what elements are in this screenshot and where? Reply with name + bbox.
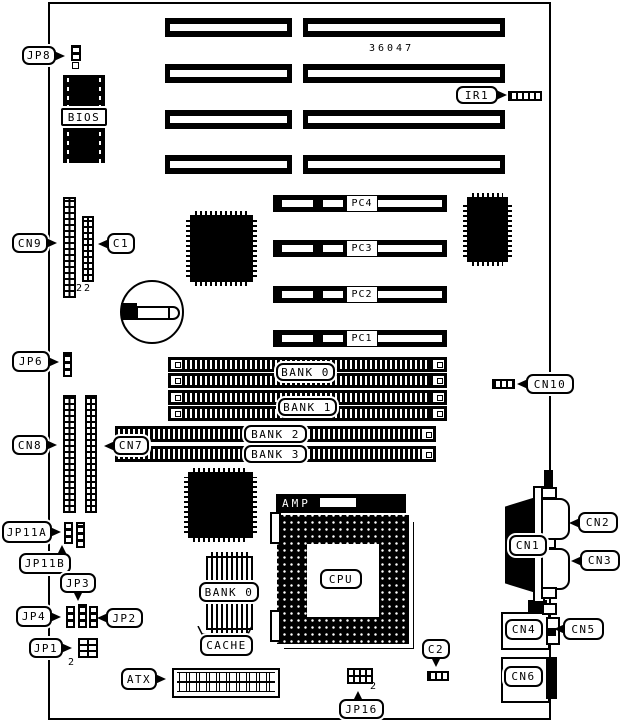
callout-tail <box>97 613 108 623</box>
pci-slot-pc4: PC4 <box>273 195 447 212</box>
jp11a-jumper <box>64 522 73 544</box>
callout-tail <box>569 518 580 528</box>
atx-callout: ATX <box>121 668 157 690</box>
simm-end-bracket <box>432 359 445 370</box>
socket-side-tab <box>270 512 281 544</box>
pci-slot-pc2: PC2 <box>273 286 447 303</box>
jp11b-callout: JP11B <box>19 553 71 574</box>
callout-tail <box>554 624 565 634</box>
pci-stripe <box>378 200 442 207</box>
pci-stripe <box>323 291 343 298</box>
dimm-end-bracket <box>421 448 434 460</box>
cn3-callout: CN3 <box>580 550 620 571</box>
amp-label: AMP <box>282 497 311 510</box>
bank0-callout: BANK 0 <box>276 363 335 381</box>
callout-tail <box>353 691 363 701</box>
simm-end-bracket <box>432 375 445 386</box>
callout-tail <box>496 90 507 100</box>
callout-tail <box>104 441 115 451</box>
cn4-callout: CN4 <box>505 619 543 640</box>
jp1-pin2-text: 2 <box>68 657 76 668</box>
jp16-callout: JP16 <box>339 699 384 719</box>
callout-tail <box>50 612 61 622</box>
jp16-pin2-text: 2 <box>370 681 378 692</box>
chipset-qfp-3 <box>188 472 253 538</box>
cn8-header <box>63 395 76 513</box>
pci-stripe <box>378 245 442 252</box>
bios-label: BIOS <box>68 111 101 124</box>
jp3-callout: JP3 <box>60 573 96 593</box>
atx-pin-row <box>177 672 275 682</box>
jp6-label: JP6 <box>19 355 43 368</box>
isa-slot-1-left <box>165 18 292 37</box>
jp1-callout: JP1 <box>29 638 63 658</box>
pci-stripe <box>282 200 313 207</box>
bank1-callout: BANK 1 <box>278 398 337 416</box>
cn10-connector-icon <box>492 379 515 389</box>
pci-stripe <box>323 245 343 252</box>
cn2-callout: CN2 <box>578 512 618 533</box>
jp4-callout: JP4 <box>16 606 52 627</box>
c1-pin22-text: 22 <box>76 283 92 294</box>
jp16-label: JP16 <box>345 703 378 716</box>
jp11a-label: JP11A <box>7 526 48 539</box>
pci-slot-label: PC3 <box>346 240 378 257</box>
pci-stripe <box>378 291 442 298</box>
simm-end-bracket <box>170 408 183 419</box>
cn1-top-stub <box>544 470 553 487</box>
cn3-connector <box>541 548 570 590</box>
chipset-qfp-1 <box>190 215 253 282</box>
battery-lever <box>136 306 180 320</box>
cn8-label: CN8 <box>18 439 42 452</box>
cache-bank0-callout: BANK 0 <box>199 582 259 602</box>
callout-tail <box>571 556 582 566</box>
jp1-label: JP1 <box>34 642 58 655</box>
pci-slot-pc3: PC3 <box>273 240 447 257</box>
cn1-callout: CN1 <box>509 535 547 556</box>
isa-slot-4-left <box>165 155 292 174</box>
bios-callout: BIOS <box>61 108 107 126</box>
c2-label: C2 <box>428 643 444 656</box>
ir1-label: IR1 <box>465 89 489 102</box>
jp11b-jumper <box>76 522 85 548</box>
cn9-header <box>63 197 76 298</box>
isa-slot-3-left <box>165 110 292 129</box>
cn2-connector <box>541 498 570 540</box>
bank2-callout: BANK 2 <box>244 425 307 443</box>
c1-header <box>82 216 94 282</box>
pci-stripe <box>323 200 343 207</box>
jp2-callout: JP2 <box>106 608 143 628</box>
simm-end-bracket <box>432 408 445 419</box>
cn7-label: CN7 <box>119 439 143 452</box>
callout-tail <box>46 440 57 450</box>
simm-end-bracket <box>170 392 183 403</box>
cn9-callout: CN9 <box>12 233 48 253</box>
bank0-label: BANK 0 <box>281 366 330 379</box>
atx-power-connector <box>172 668 280 698</box>
jp6-jumper <box>63 352 72 377</box>
cn1-label: CN1 <box>516 539 540 552</box>
amp-socket-bar: AMP <box>276 494 406 513</box>
isa-slot-2-right <box>303 64 505 83</box>
callout-tail <box>431 657 441 667</box>
cn9-label: CN9 <box>18 237 42 250</box>
pci-stripe <box>323 335 343 342</box>
cache-label: CACHE <box>206 639 247 652</box>
motherboard-diagram: 36047 IR1 JP8 BIOS CN9 C1 22 JP6 <box>0 0 623 722</box>
callout-tail <box>517 379 528 389</box>
cn3-label: CN3 <box>588 554 612 567</box>
isa-slot-1-right <box>303 18 505 37</box>
simm-end-bracket <box>432 392 445 403</box>
jp3-jumper <box>78 604 87 628</box>
cn10-callout: CN10 <box>526 374 574 394</box>
cn5-label: CN5 <box>571 623 595 636</box>
bracket-tab <box>541 587 557 599</box>
jp8-pin1-pad <box>72 62 79 69</box>
jp11b-label: JP11B <box>25 557 66 570</box>
cn8-callout: CN8 <box>12 435 48 455</box>
atx-label: ATX <box>127 673 151 686</box>
pci-stripe <box>282 335 313 342</box>
callout-tail <box>73 591 83 601</box>
ir1-connector-icon <box>508 91 542 101</box>
c1-callout: C1 <box>107 233 135 254</box>
cn5-callout: CN5 <box>563 618 604 640</box>
simm-end-bracket <box>170 375 183 386</box>
isa-slot-3-right <box>303 110 505 129</box>
bank1-label: BANK 1 <box>283 401 332 414</box>
callout-tail <box>46 238 57 248</box>
jp6-callout: JP6 <box>12 351 50 372</box>
pci-slot-label: PC4 <box>346 195 378 212</box>
isa-slot-2-left <box>165 64 292 83</box>
jp11a-callout: JP11A <box>2 521 52 543</box>
board-number: 36047 <box>369 43 414 54</box>
bank3-label: BANK 3 <box>251 448 300 461</box>
pci-slot-label: PC1 <box>346 330 378 347</box>
jp4-jumper <box>66 606 75 628</box>
cpu-label: CPU <box>329 573 353 586</box>
isa-slot-4-right <box>303 155 505 174</box>
cn7-callout: CN7 <box>113 436 149 455</box>
battery-key-tab <box>121 303 137 320</box>
ir1-callout: IR1 <box>456 86 498 104</box>
jp2-label: JP2 <box>112 612 136 625</box>
callout-tail <box>48 357 59 367</box>
simm-end-bracket <box>170 359 183 370</box>
pci-stripe <box>282 291 313 298</box>
cache-callout: CACHE <box>200 635 253 656</box>
c1-label: C1 <box>113 237 129 250</box>
jp3-label: JP3 <box>66 577 90 590</box>
cn6-callout: CN6 <box>504 666 543 687</box>
jp8-jumper <box>71 45 81 61</box>
callout-tail <box>54 51 65 61</box>
callout-tail <box>57 545 67 555</box>
cpu-callout: CPU <box>320 569 362 589</box>
jp8-callout: JP8 <box>22 46 56 65</box>
bank3-callout: BANK 3 <box>244 445 307 463</box>
pci-stripe <box>282 245 313 252</box>
cache-bank0-label: BANK 0 <box>205 586 254 599</box>
atx-pin-row <box>177 682 275 692</box>
jp8-label: JP8 <box>27 49 51 62</box>
c2-connector-icon <box>427 671 449 681</box>
amp-bar-window <box>320 498 356 507</box>
socket-side-tab <box>270 610 281 642</box>
bracket-tab <box>542 603 557 615</box>
pci-slot-label: PC2 <box>346 286 378 303</box>
pci-stripe <box>378 335 442 342</box>
callout-tail <box>61 643 72 653</box>
cn6-side-block <box>546 657 557 699</box>
dimm-end-bracket <box>421 428 434 440</box>
callout-tail <box>155 674 166 684</box>
bank2-label: BANK 2 <box>251 428 300 441</box>
cn4-label: CN4 <box>512 623 536 636</box>
chipset-qfp-2 <box>467 197 508 262</box>
callout-tail <box>98 239 109 249</box>
cn7-header <box>85 395 97 513</box>
jp4-label: JP4 <box>22 610 46 623</box>
pci-slot-pc1: PC1 <box>273 330 447 347</box>
c2-callout: C2 <box>422 639 450 659</box>
cn6-label: CN6 <box>511 670 535 683</box>
callout-tail <box>50 527 61 537</box>
cn10-label: CN10 <box>534 378 567 391</box>
cn2-label: CN2 <box>586 516 610 529</box>
jp1-header <box>78 638 98 658</box>
